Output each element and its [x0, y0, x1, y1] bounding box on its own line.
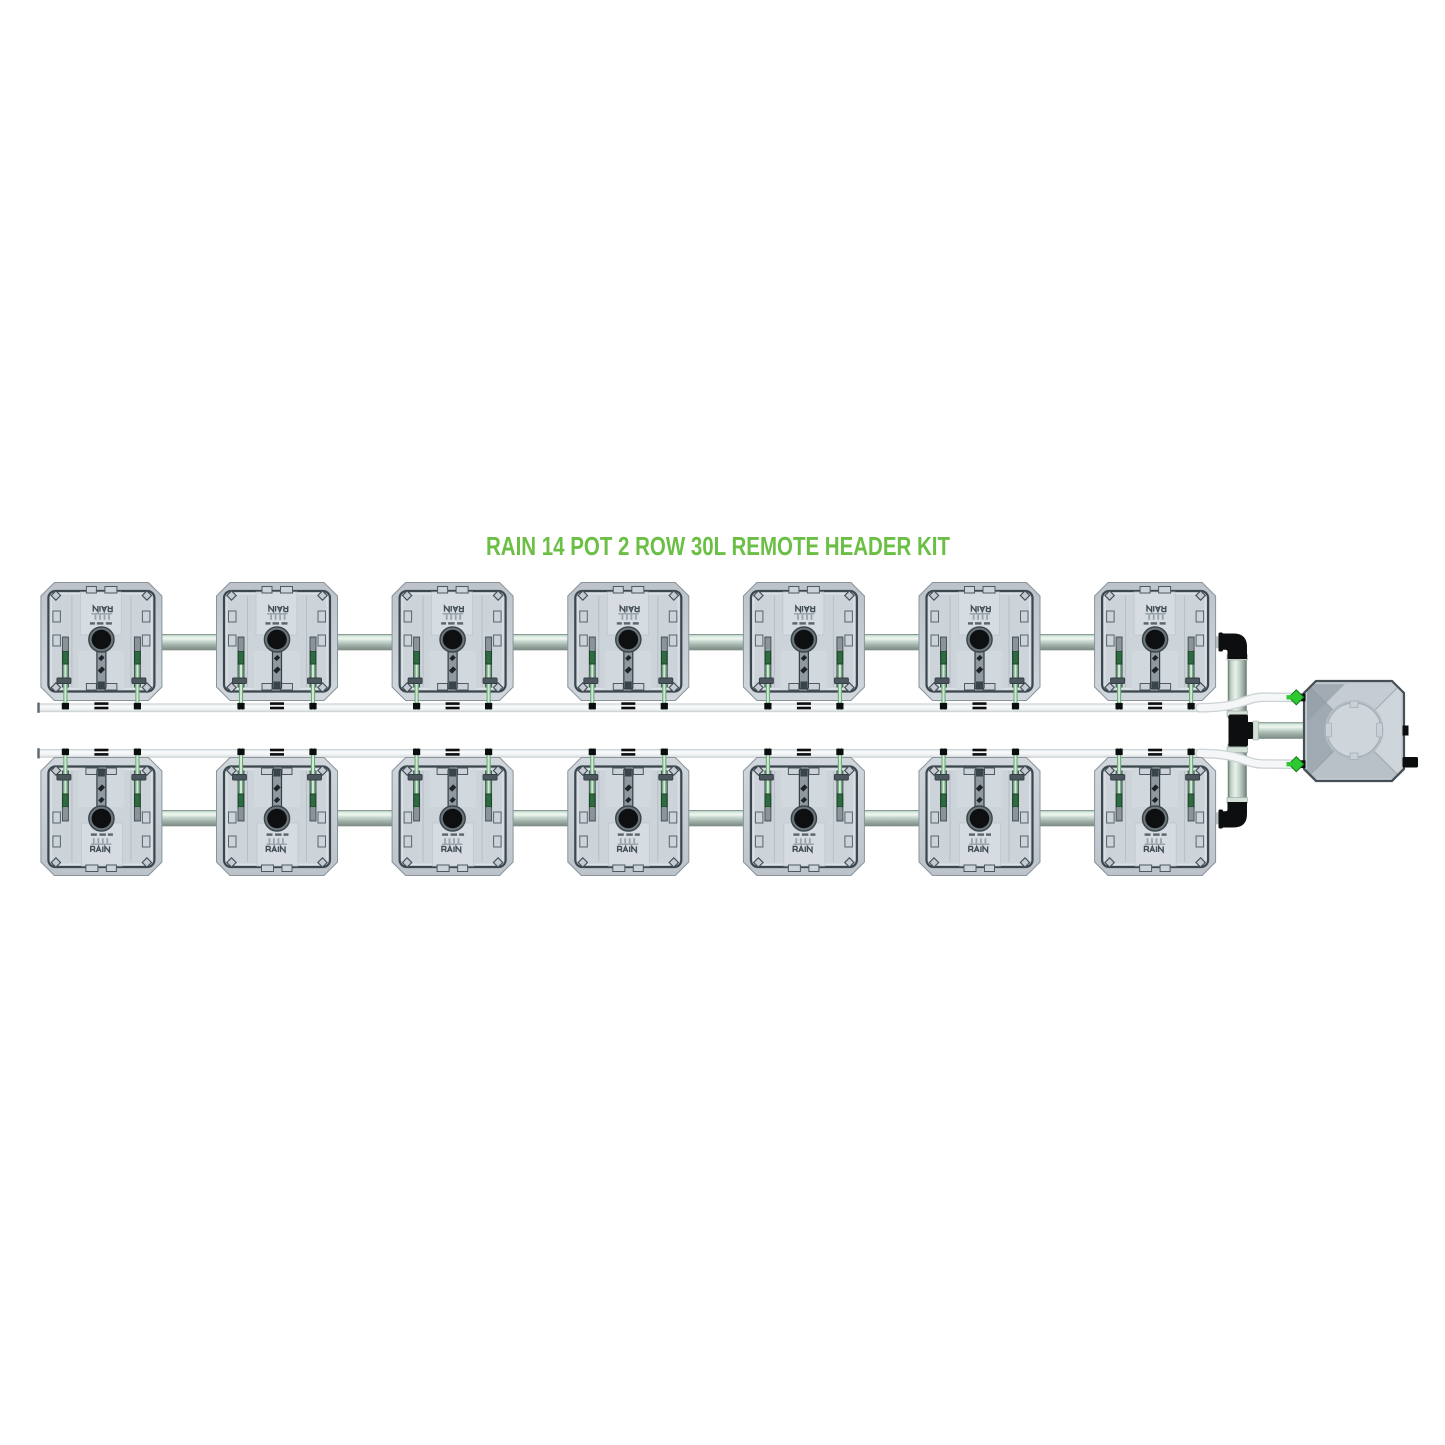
svg-text:RAIN 14 POT 2 ROW 30L REMOTE H: RAIN 14 POT 2 ROW 30L REMOTE HEADER KIT — [486, 531, 950, 561]
